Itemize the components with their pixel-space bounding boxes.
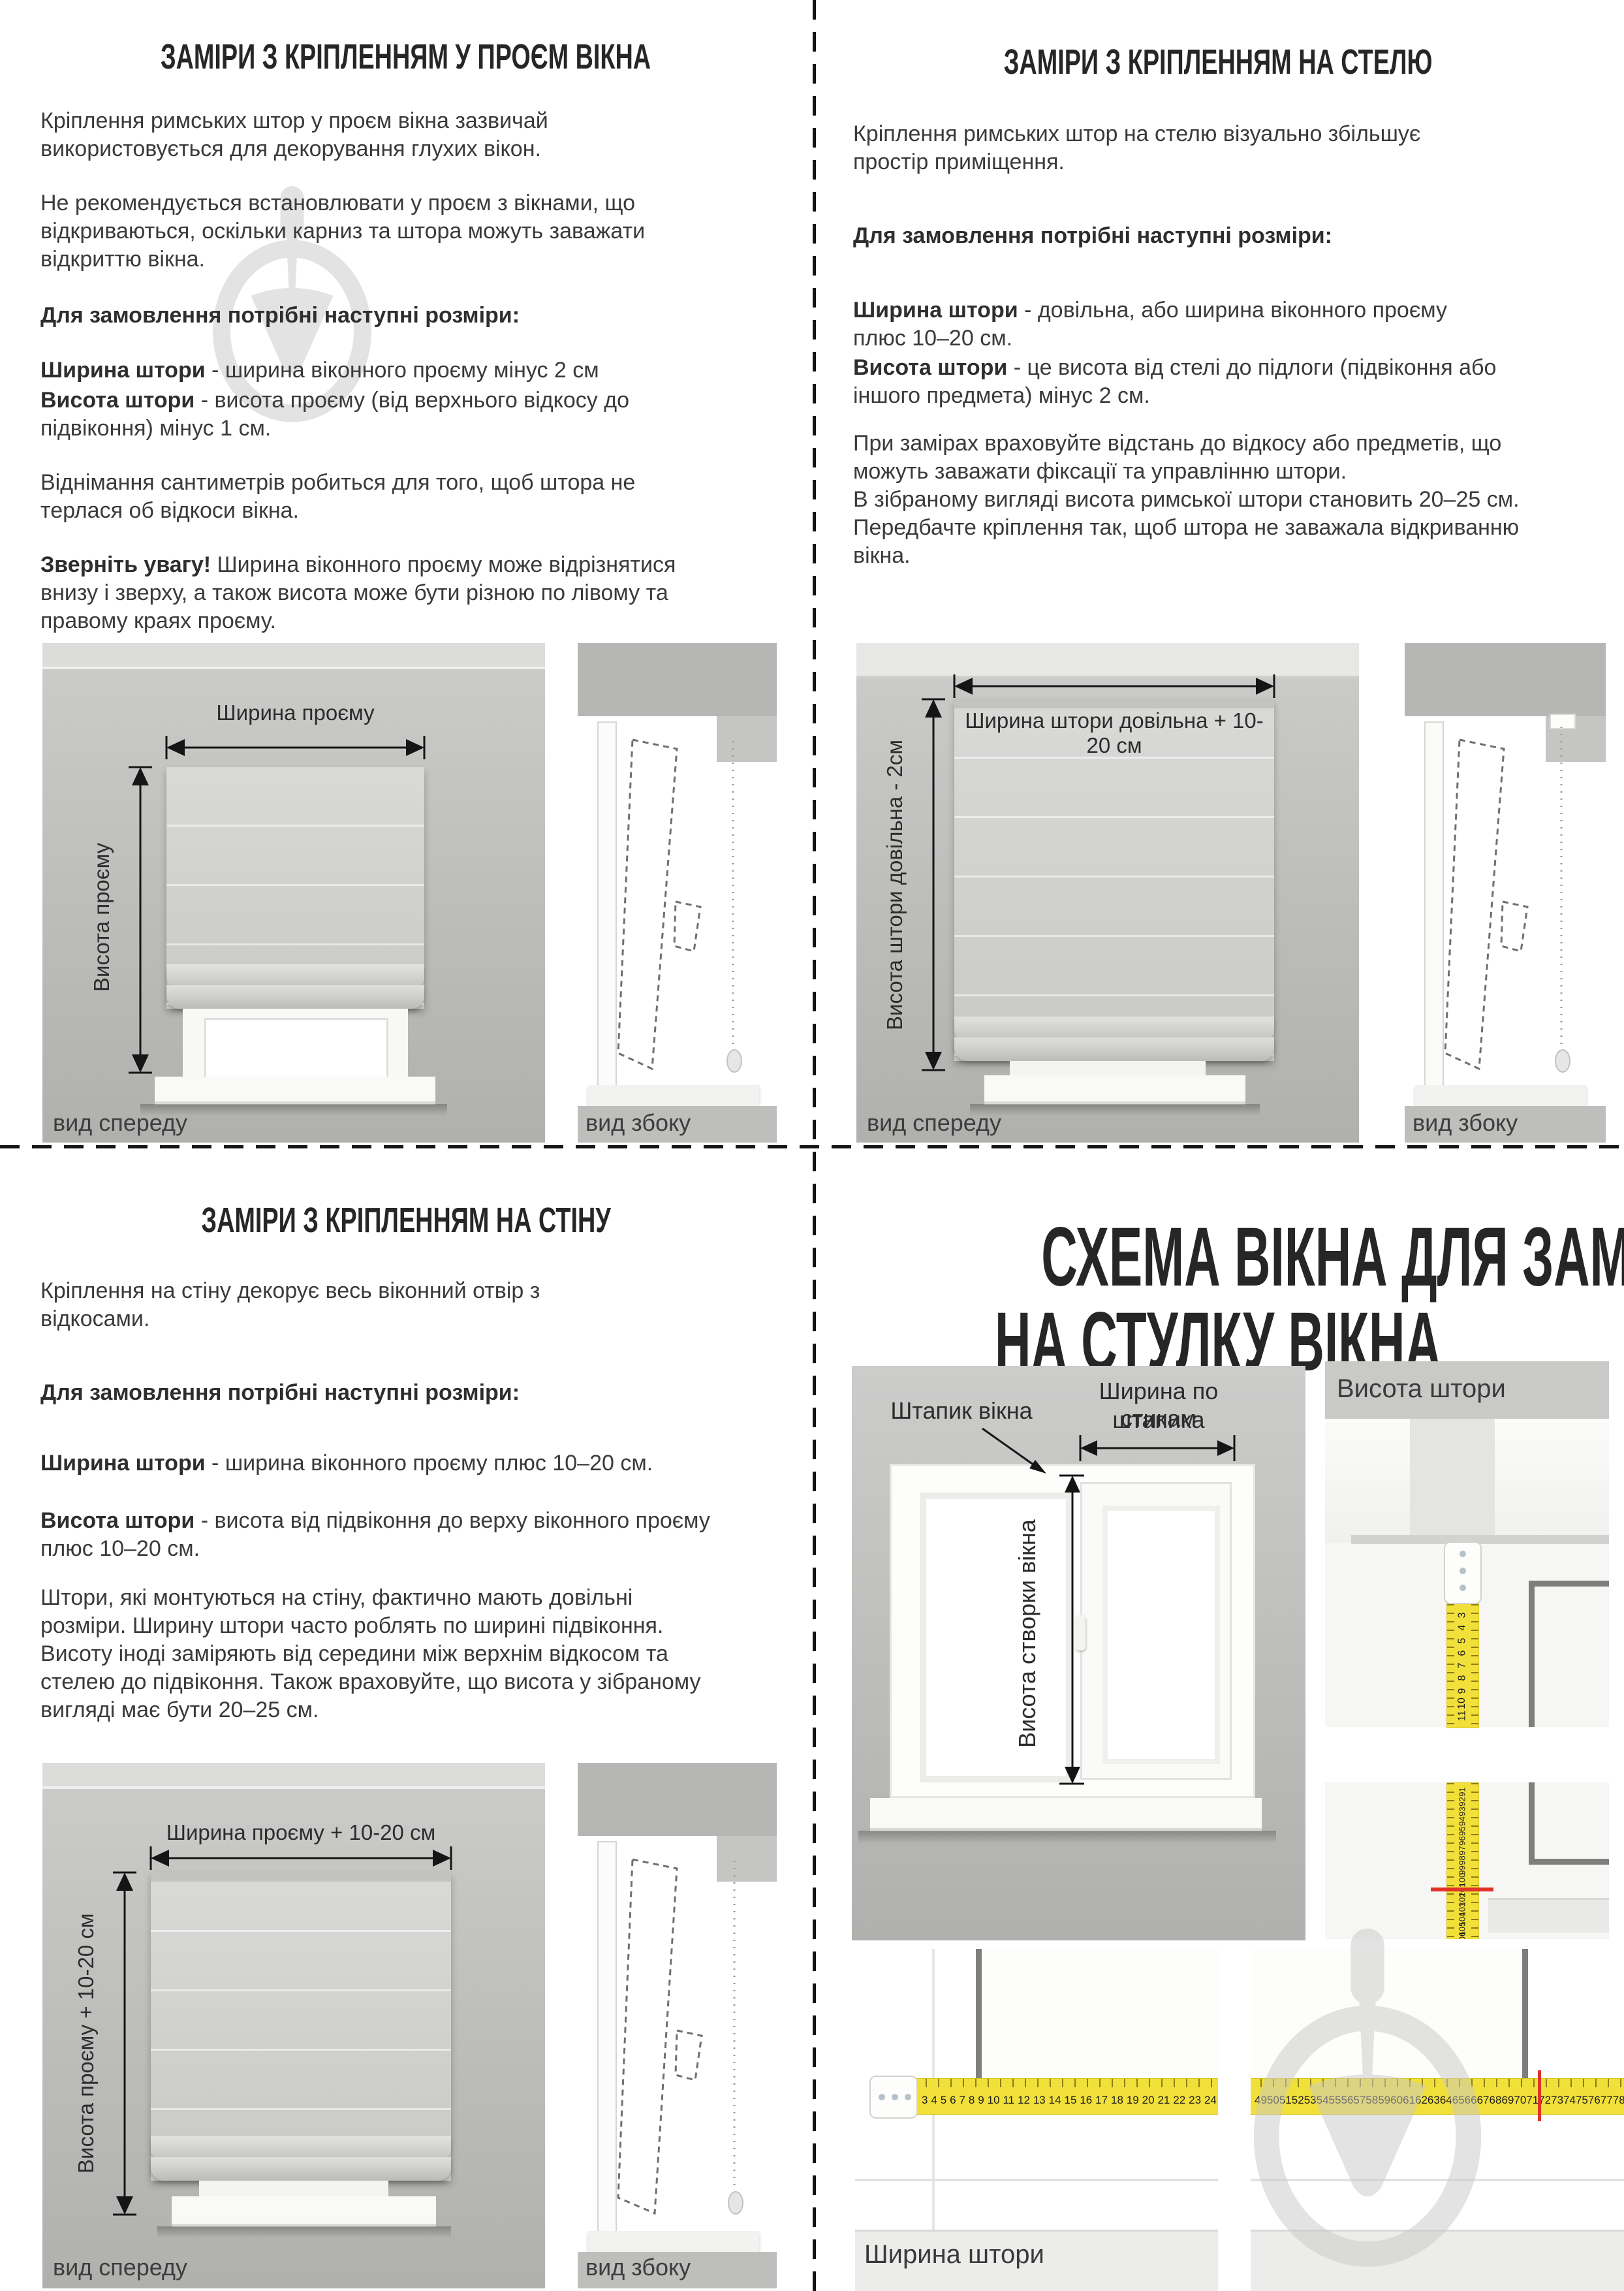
q1-dimension-arrows [42,643,545,1143]
q2-paragraph-3: В зібраному вигляді висота римської штор… [853,486,1525,570]
q2-side-view-figure: вид збоку [1405,643,1606,1143]
q2-shade-height-label: Висота штори довільна - 2см [882,735,907,1035]
tilted-sash-outline [578,1763,777,2288]
q2-paragraph-2: При замірах враховуйте відстань до відко… [853,430,1545,486]
q3-side-view-figure: вид збоку [578,1763,777,2288]
tape-tip-hole [1460,1585,1466,1591]
tape-ticks [1471,1783,1478,1939]
q2-width-definition: Ширина штори - довільна, або ширина віко… [853,296,1493,353]
chain-weight [1555,1049,1570,1073]
q4-height-photo: 34567891011 9192939495969798991001011021… [1325,1361,1609,1939]
tilted-sash-outline [1405,643,1606,1143]
q3-side-caption: вид збоку [586,2254,691,2281]
q2-front-view-figure: Ширина штори довільна + 10-20 см Висота … [856,643,1359,1143]
chain-weight [726,1049,742,1073]
red-measure-mark [1538,2070,1541,2121]
q1-width-definition: Ширина штори - ширина віконного проєму м… [40,356,599,385]
q4-sash-height-label: Висота створки вікна [1014,1509,1041,1758]
q1-side-view-figure: вид збоку [578,643,777,1143]
tape-tip-hole [905,2094,911,2100]
tape-numbers-left: 3456789101112131415161718192021222324 [922,2094,1217,2107]
horizontal-dashed-divider [0,1145,1624,1148]
ceiling-shelf-edge [1351,1535,1609,1544]
q1-front-view-figure: Ширина проєму Висота проєму вид спереду [42,643,545,1143]
q1-note: Зверніть увагу! Ширина віконного проєму … [40,551,739,635]
q2-side-caption: вид збоку [1413,1109,1518,1137]
q3-paragraph-1: Кріплення на стіну декорує весь віконний… [40,1277,628,1333]
tape-numbers-bottom: 9192939495969798991001011021031041051061… [1454,1787,1470,1936]
q2-order-heading: Для замовлення потрібні наступні розміри… [853,222,1332,250]
windowsill-section [588,1085,759,1106]
tape-tip-hole [879,2094,885,2100]
trowel-logo-watermark [1227,1926,1508,2282]
q4-title-line1: СХЕМА ВІКНА ДЛЯ ЗАМІРІВ [812,1209,1624,1305]
measurement-instruction-sheet: ЗАМІРИ З КРІПЛЕННЯМ У ПРОЄМ ВІКНА Кріпле… [0,0,1624,2291]
q3-paragraph-2: Штори, які монтуються на стіну, фактично… [40,1584,719,1724]
q3-dimension-arrows [42,1763,545,2288]
q2-height-definition: Висота штори - це висота від стелі до пі… [853,354,1545,410]
windowsill-section [1415,1085,1586,1106]
q1-title: ЗАМІРИ З КРІПЛЕННЯМ У ПРОЄМ ВІКНА [0,37,812,77]
q1-side-caption: вид збоку [586,1109,691,1137]
windowsill-section [588,2231,759,2252]
q3-width-definition: Ширина штори - ширина віконного проєму п… [40,1449,653,1477]
q3-order-heading: Для замовлення потрібні наступні розміри… [40,1379,520,1407]
q2-dimension-arrows [856,643,1359,1143]
q1-order-heading: Для замовлення потрібні наступні розміри… [40,302,520,330]
tape-tip-hole [1460,1551,1466,1557]
tape-tip-hole [1460,1568,1466,1574]
window-edge-line [1529,1859,1609,1865]
tape-numbers-top: 34567891011 [1454,1609,1470,1722]
q3-front-caption: вид спереду [53,2254,187,2281]
q4-window-diagram: Штапик вікна Ширина по стикам штапика Ви… [852,1366,1305,1940]
q4-height-photo-caption: Висота штори [1337,1374,1506,1404]
q3-shade-height-label: Висота проєму + 10-20 см [74,1893,99,2194]
window-edge-line [1529,1581,1535,1864]
q1-paragraph-2: Не рекомендується встановлювати у проєм … [40,189,713,274]
red-measure-mark [1431,1888,1493,1891]
chain-weight [728,2191,743,2215]
tape-ticks [1447,1783,1454,1939]
photo-seam [1325,1727,1609,1782]
tape-tip-hole [892,2094,898,2100]
q3-title: ЗАМІРИ З КРІПЛЕННЯМ НА СТІНУ [0,1200,812,1240]
q1-height-definition: Висота штори - висота проєму (від верхнь… [40,387,700,443]
q1-opening-height-label: Висота проєму [89,800,114,1035]
tape-tip [869,2076,918,2119]
wall-pillar [1410,1419,1495,1535]
q1-paragraph-1: Кріплення римських штор у проєм вікна за… [40,107,693,163]
q1-front-caption: вид спереду [53,1109,187,1137]
q1-paragraph-3: Віднімання сантиметрів робиться для того… [40,469,706,525]
q2-front-caption: вид спереду [867,1109,1001,1137]
window-edge-line [1529,1581,1609,1587]
q3-height-definition: Висота штори - висота від підвіконня до … [40,1507,719,1563]
tilted-sash-outline [578,643,777,1143]
q2-paragraph-1: Кріплення римських штор на стелю візуаль… [853,120,1493,176]
q3-front-view-figure: Ширина проєму + 10-20 см Висота проєму +… [42,1763,545,2288]
q2-title: ЗАМІРИ З КРІПЛЕННЯМ НА СТЕЛЮ [812,42,1624,82]
q4-width-photo-caption: Ширина штори [864,2240,1044,2269]
tape-tip [1444,1541,1482,1604]
q4-diagram-arrows [852,1366,1305,1940]
